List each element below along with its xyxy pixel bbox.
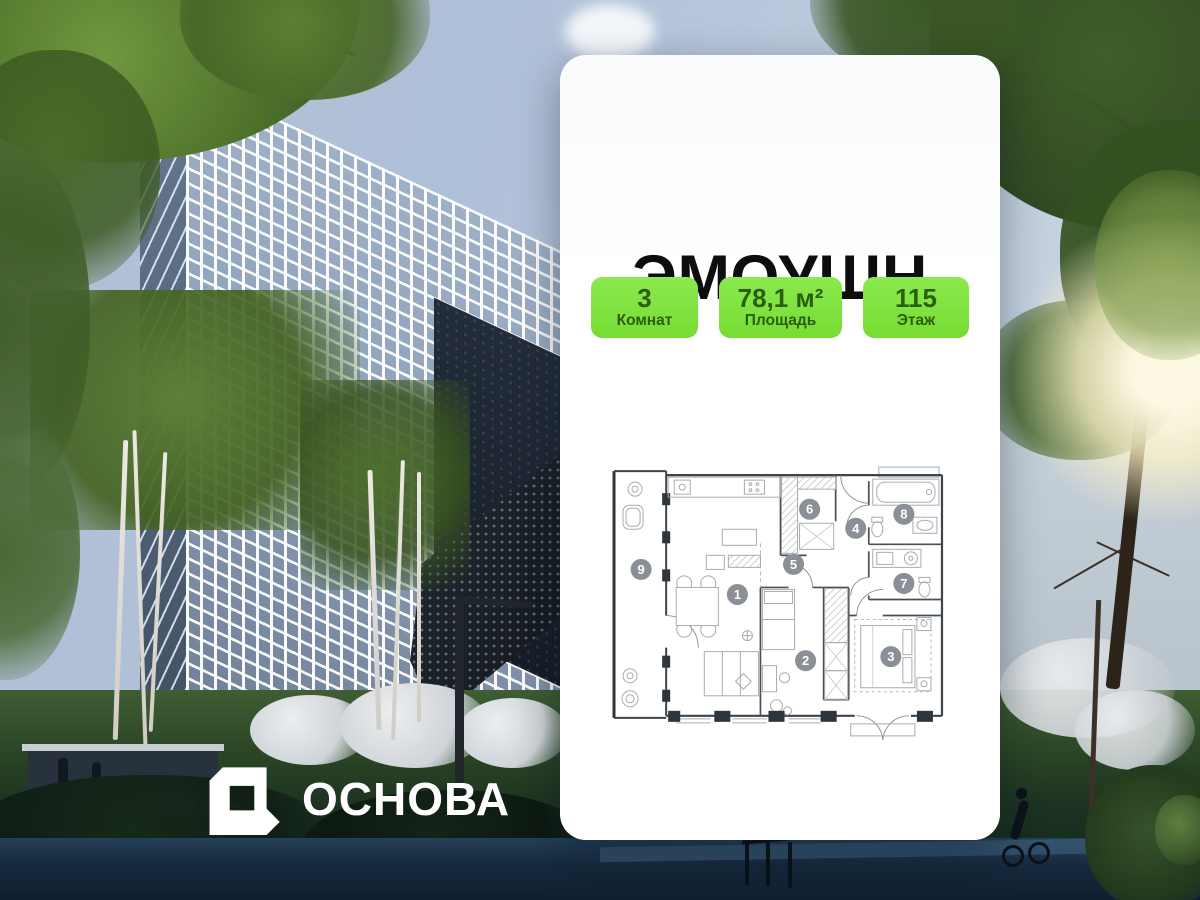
badge-floor: 115 Этаж	[863, 277, 969, 338]
balcony-items	[622, 482, 643, 707]
svg-text:2: 2	[802, 653, 809, 668]
developer-logo: ОСНОВА	[198, 756, 510, 842]
svg-text:8: 8	[900, 507, 907, 522]
cloud	[565, 4, 655, 59]
kiosk-roof	[22, 744, 224, 751]
svg-text:5: 5	[790, 557, 797, 572]
gym-equipment	[788, 842, 792, 888]
apartment-card: ЭМОУШН 3 Комнат 78,1 м² Площадь 115 Этаж	[560, 55, 1000, 840]
tree-canopy	[300, 380, 470, 590]
gym-equipment	[745, 840, 749, 885]
svg-text:3: 3	[887, 649, 894, 664]
cyclist-head	[1016, 788, 1027, 799]
floor-plan: 123456789	[610, 465, 946, 744]
area-value: 78,1 м²	[738, 285, 824, 312]
badge-rooms: 3 Комнат	[591, 277, 698, 338]
kitchen-furniture	[668, 477, 780, 569]
svg-text:1: 1	[734, 587, 741, 602]
gym-equipment	[766, 836, 770, 886]
developer-name: ОСНОВА	[302, 772, 510, 826]
hall-cabinet	[728, 555, 760, 567]
svg-text:9: 9	[637, 562, 644, 577]
osnova-logo-icon	[198, 756, 286, 842]
birch-trunk	[417, 472, 421, 722]
svg-text:4: 4	[852, 521, 860, 536]
badge-area: 78,1 м² Площадь	[719, 277, 842, 338]
floor-label: Этаж	[897, 312, 935, 330]
bicycle-wheel	[1028, 842, 1050, 864]
area-label: Площадь	[745, 312, 817, 330]
svg-text:7: 7	[900, 576, 907, 591]
dining-set	[676, 576, 718, 637]
bedroom-2-furniture	[762, 589, 794, 714]
rooms-label: Комнат	[617, 312, 673, 330]
floor-value: 115	[895, 285, 937, 312]
wardrobe-strip	[825, 588, 848, 699]
bicycle-wheel	[1002, 845, 1024, 867]
rooms-value: 3	[637, 285, 651, 312]
sofa	[704, 631, 758, 696]
scene: ЭМОУШН 3 Комнат 78,1 м² Площадь 115 Этаж	[0, 0, 1200, 900]
svg-text:6: 6	[806, 502, 813, 517]
badges-row: 3 Комнат 78,1 м² Площадь 115 Этаж	[584, 277, 976, 338]
